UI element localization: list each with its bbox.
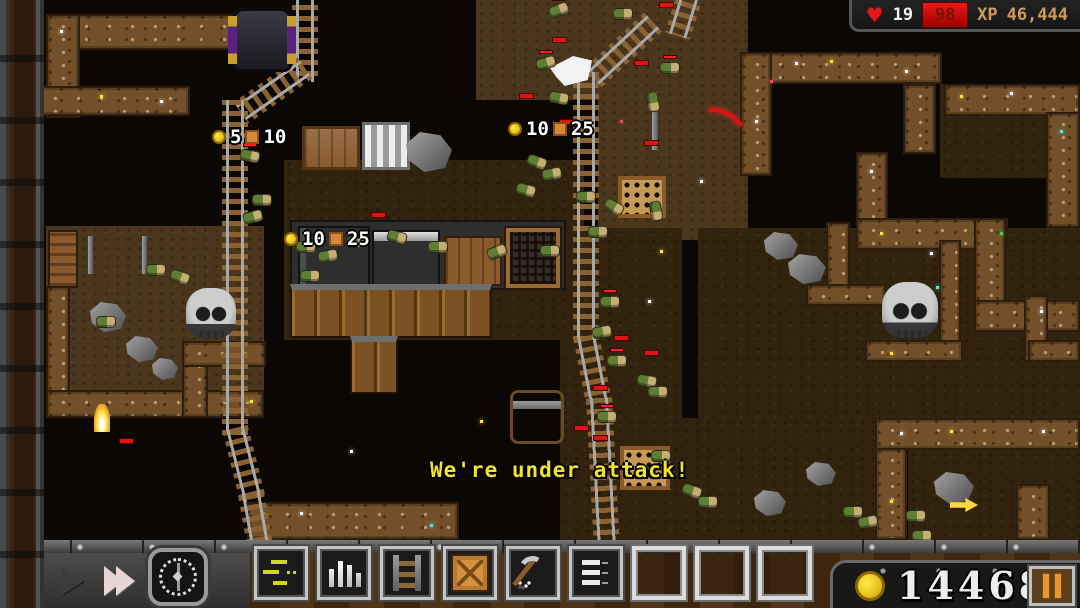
rail-track (573, 72, 599, 340)
chest-sprite (510, 390, 564, 444)
pause-button[interactable] (1029, 566, 1075, 606)
portal-sprite (232, 8, 292, 72)
ore-sparkle (300, 512, 303, 515)
wooden-wall (247, 502, 459, 540)
ore-sparkle (870, 170, 873, 173)
hud-panel: ♥ 19 98 XP 46,444 (849, 0, 1080, 32)
pole-sprite (88, 236, 93, 274)
toolbar-slot-9[interactable] (758, 546, 812, 600)
ore-sparkle (350, 450, 353, 453)
hit-marker (615, 336, 628, 340)
gold-panel: 14468 (830, 560, 1080, 608)
goblin-sprite (300, 270, 320, 282)
goblin-sprite (540, 245, 560, 257)
hit-marker (594, 436, 607, 440)
hp-badge: 98 (922, 2, 968, 28)
ore-sparkle (100, 95, 103, 98)
bottom-bar: 14468 (0, 540, 1080, 608)
goblin-sprite (146, 264, 166, 276)
goblin-sprite (252, 194, 272, 206)
goblin-sprite (651, 450, 671, 462)
wooden-wall (1016, 484, 1050, 540)
ore-sparkle (250, 400, 253, 403)
ore-sparkle (160, 100, 163, 103)
crate-icon (453, 556, 487, 590)
wooden-wall (826, 222, 850, 288)
enemy-health-bar (539, 50, 553, 54)
hit-marker (635, 61, 648, 65)
fast-forward-icon (116, 566, 135, 596)
planks-sprite (350, 336, 398, 394)
ore-sparkle (890, 500, 893, 503)
toolbar-slot-5[interactable] (506, 546, 560, 600)
wooden-wall (903, 84, 936, 154)
enemy-health-bar (552, 0, 566, 1)
hit-marker (604, 466, 617, 470)
ladder-icon (393, 555, 421, 591)
wooden-wall (1046, 112, 1080, 228)
lives-count: 19 (893, 5, 913, 25)
skull-sprite (186, 288, 236, 338)
ore-sparkle (936, 286, 939, 289)
enemy-health-bar (603, 289, 617, 293)
pause-icon (1054, 573, 1062, 599)
list-icon (580, 557, 612, 589)
goblin-sprite (607, 355, 627, 367)
ore-sparkle (1060, 130, 1063, 133)
hit-marker (553, 38, 566, 42)
toolbar-slot-7[interactable] (632, 546, 686, 600)
toolbar-slot-1[interactable] (254, 546, 308, 600)
bench-sprite (48, 230, 78, 288)
wooden-wall (875, 418, 1080, 450)
toolbar-slot-4[interactable] (443, 546, 497, 600)
ore-sparkle (795, 62, 798, 65)
goblin-sprite (648, 386, 668, 398)
ore-sparkle (1010, 92, 1013, 95)
hit-marker (645, 141, 658, 145)
game-viewport[interactable] (0, 0, 1080, 540)
goblin-sprite (548, 90, 570, 105)
hit-marker (520, 94, 533, 98)
bar-chart-icon (326, 557, 362, 589)
pause-icon (1042, 573, 1050, 599)
ore-sparkle (1040, 310, 1043, 313)
rail-track (238, 492, 272, 546)
toolbar-slot-3[interactable] (380, 546, 434, 600)
hit-marker (575, 426, 588, 430)
goblin-sprite (600, 296, 620, 308)
goblin-sprite (428, 241, 448, 253)
ore-sparkle (755, 120, 758, 123)
ore-sparkle (660, 250, 663, 253)
goblin-sprite (588, 226, 608, 238)
wooden-wall (806, 284, 886, 306)
ore-sparkle (890, 352, 893, 355)
toolbar-slot-8[interactable] (695, 546, 749, 600)
crate-sprite (302, 126, 360, 170)
enemy-health-bar (243, 143, 257, 147)
play-button[interactable] (62, 567, 84, 595)
goblin-sprite (660, 62, 680, 74)
ore-sparkle (1042, 430, 1045, 433)
goblin-sprite (597, 411, 617, 423)
time-control-panel (42, 553, 250, 608)
pickaxe-icon (515, 556, 551, 590)
ore-sparkle (430, 524, 433, 527)
heart-icon: ♥ (866, 5, 884, 25)
ore-sparkle (960, 95, 963, 98)
goblin-sprite (698, 496, 718, 508)
ore-sparkle (620, 120, 623, 123)
wooden-wall (740, 52, 772, 176)
ore-sparkle (900, 432, 903, 435)
ore-sparkle (880, 232, 883, 235)
rail-track (222, 425, 265, 503)
workbench-sprite (444, 236, 502, 286)
goblin-sprite (347, 236, 367, 248)
ore-sparkle (930, 252, 933, 255)
wooden-wall (46, 286, 70, 396)
wooden-wall (865, 340, 963, 362)
ore-sparkle (1000, 232, 1003, 235)
goblin-sprite (296, 241, 316, 253)
clock-button[interactable] (148, 548, 208, 606)
gold-amount: 14468 (897, 564, 1049, 608)
fast-forward-button[interactable] (104, 566, 128, 596)
wooden-wall (875, 448, 907, 540)
planks-sprite (290, 284, 492, 338)
ore-sparkle (480, 420, 483, 423)
furnace-sprite (506, 228, 560, 288)
game-window: 5 10 10 25 10 25 We're under attack! ♥ 1… (0, 0, 1080, 608)
enemy-health-bar (610, 348, 624, 352)
dirt-floor (908, 450, 1080, 540)
ore-sparkle (830, 60, 833, 63)
wooden-wall (38, 86, 190, 116)
ore-sparkle (905, 70, 908, 73)
hp-value: 98 (935, 5, 955, 25)
hit-marker (120, 439, 133, 443)
goblin-sprite (96, 316, 116, 328)
ore-sparkle (648, 300, 651, 303)
hit-marker (594, 386, 607, 390)
skull-sprite (882, 282, 938, 338)
goblin-sprite (613, 8, 633, 20)
ore-sparkle (60, 30, 63, 33)
hit-marker (645, 351, 658, 355)
ore-sparkle (950, 430, 953, 433)
toolbar (254, 546, 812, 600)
tasks-list-icon (263, 558, 299, 588)
hit-marker (372, 213, 385, 217)
silverbox-sprite (362, 122, 410, 170)
toolbar-slot-6[interactable] (569, 546, 623, 600)
ore-sparkle (770, 80, 773, 83)
goblin-sprite (906, 510, 926, 522)
xp-value: 46,444 (1007, 5, 1068, 25)
toolbar-slot-2[interactable] (317, 546, 371, 600)
map-border (0, 0, 44, 608)
hit-marker (560, 120, 573, 124)
wooden-wall (1028, 340, 1080, 362)
coin-icon (855, 571, 885, 601)
enemy-health-bar (600, 404, 614, 408)
hit-marker (660, 3, 673, 7)
ore-sparkle (700, 180, 703, 183)
xp-label: XP (977, 5, 997, 25)
flame-sprite (94, 404, 110, 432)
clock-icon (159, 558, 197, 596)
goblin-sprite (576, 191, 596, 203)
enemy-health-bar (663, 55, 677, 59)
